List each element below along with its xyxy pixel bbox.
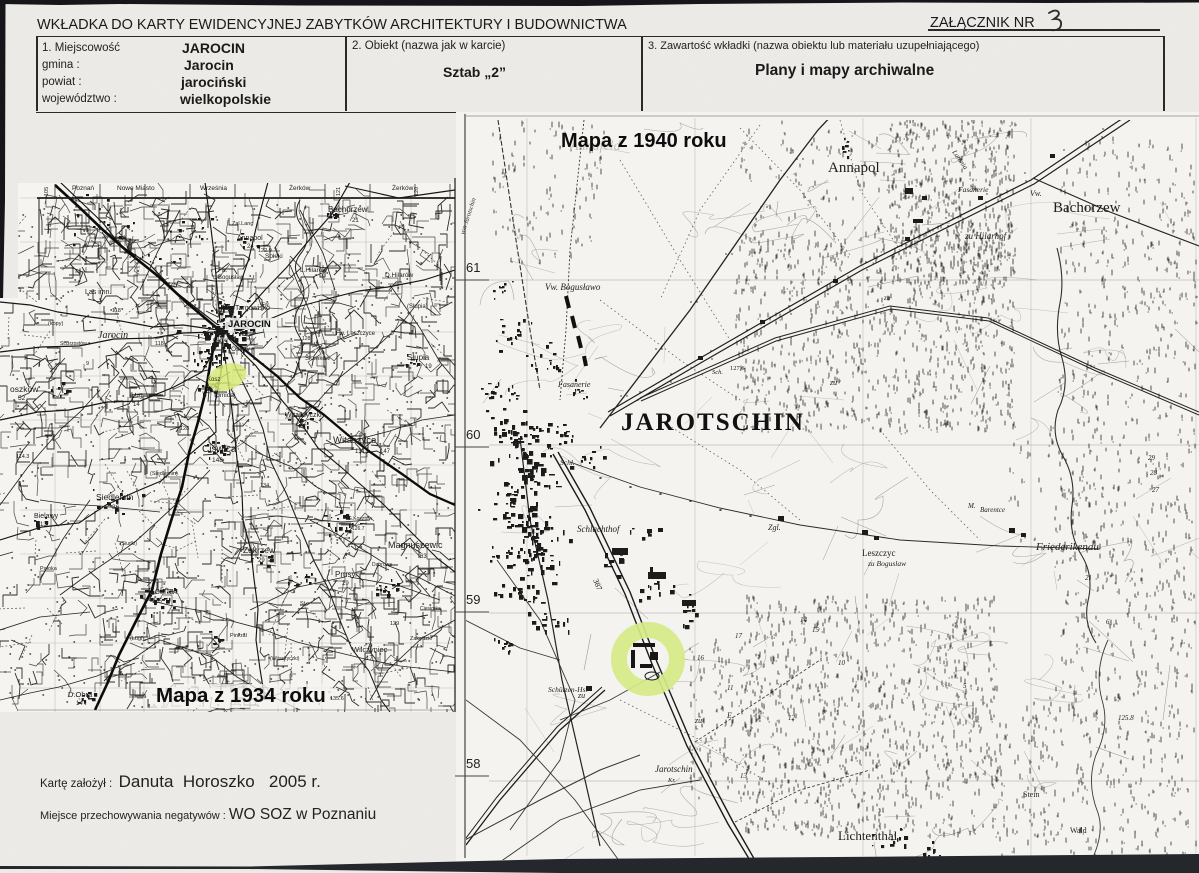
svg-text:52: 52	[18, 395, 26, 402]
svg-text:Żerków: Żerków	[392, 183, 414, 192]
svg-text:Zgl.: Zgl.	[768, 523, 781, 532]
svg-text:61: 61	[466, 260, 480, 275]
svg-text:148: 148	[212, 457, 223, 464]
svg-text:29: 29	[342, 581, 349, 587]
svg-text:128: 128	[302, 336, 311, 342]
svg-text:JAROTSCHIN: JAROTSCHIN	[621, 409, 805, 436]
svg-text:Mapa z 1940 roku: Mapa z 1940 roku	[561, 130, 727, 152]
svg-text:Bachorzew: Bachorzew	[1053, 200, 1121, 216]
svg-text:14: 14	[133, 402, 140, 408]
svg-text:Fw.: Fw.	[262, 302, 270, 308]
svg-text:zu: zu	[883, 294, 891, 302]
svg-text:Kosz: Kosz	[207, 377, 220, 383]
svg-text:19: 19	[425, 364, 432, 370]
svg-text:Głuki: Głuki	[213, 337, 228, 344]
svg-text:127,6: 127,6	[730, 365, 745, 372]
svg-text:Witaszyczki: Witaszyczki	[285, 412, 322, 419]
svg-text:Mapa z 1934 roku: Mapa z 1934 roku	[156, 684, 326, 707]
svg-text:Pinkral: Pinkral	[230, 633, 247, 639]
svg-text:21: 21	[1085, 574, 1092, 582]
svg-text:(kopy): (kopy)	[48, 321, 63, 327]
svg-text:Dąbrowa: Dąbrowa	[372, 562, 392, 568]
svg-text:Schlachthof: Schlachthof	[577, 524, 621, 534]
svg-text:L.Hilarów: L.Hilarów	[300, 267, 327, 274]
svg-text:126.7: 126.7	[352, 526, 365, 532]
svg-text:Pałoka: Pałoka	[40, 566, 58, 572]
svg-text:Vw. Bogusławo: Vw. Bogusławo	[545, 282, 601, 292]
svg-text:16: 16	[697, 654, 705, 662]
svg-text:Leszczyc: Leszczyc	[862, 548, 895, 558]
svg-text:Słowików: Słowików	[305, 356, 331, 362]
svg-text:135.6: 135.6	[330, 696, 344, 702]
svg-text:29: 29	[1148, 454, 1156, 462]
svg-text:120: 120	[414, 187, 420, 196]
svg-text:63: 63	[420, 554, 427, 560]
svg-text:Fw. Leszczyce: Fw. Leszczyce	[336, 331, 376, 337]
svg-text:Bogusław: Bogusław	[218, 275, 245, 281]
svg-text:Siedlemin: Siedlemin	[96, 492, 134, 502]
svg-text:zu: zu	[829, 378, 837, 387]
svg-text:11: 11	[727, 684, 733, 692]
svg-text:14: 14	[800, 616, 808, 624]
svg-text:Golina: Golina	[148, 586, 174, 596]
svg-text:Kr.: Kr.	[667, 777, 676, 784]
svg-text:29: 29	[258, 558, 265, 564]
svg-text:58: 58	[466, 756, 480, 771]
svg-text:(Słupia): (Słupia)	[407, 304, 428, 310]
svg-text:Lichtenthal: Lichtenthal	[838, 828, 898, 843]
svg-text:E.: E.	[726, 711, 734, 720]
svg-text:Annapol: Annapol	[828, 160, 880, 176]
svg-text:14: 14	[76, 701, 83, 707]
svg-text:131: 131	[355, 449, 366, 455]
svg-text:24: 24	[247, 244, 254, 250]
svg-text:129: 129	[390, 621, 399, 627]
svg-text:13: 13	[740, 772, 748, 780]
svg-text:Tomidaj: Tomidaj	[213, 392, 235, 399]
svg-text:Bielawy: Bielawy	[34, 513, 59, 520]
svg-text:Sołeki: Sołeki	[265, 253, 283, 260]
svg-text:60: 60	[466, 427, 480, 442]
svg-text:(Siudki): (Siudki)	[120, 541, 137, 547]
svg-text:Jarotschin: Jarotschin	[655, 764, 693, 774]
svg-text:Wilczyniec: Wilczyniec	[352, 645, 388, 654]
svg-text:Prusy: Prusy	[335, 570, 355, 579]
svg-text:105: 105	[44, 187, 50, 196]
svg-text:Września: Września	[200, 185, 227, 192]
svg-text:JAROCIN: JAROCIN	[228, 319, 271, 330]
svg-text:105: 105	[152, 599, 163, 605]
svg-text:59: 59	[466, 592, 480, 607]
svg-text:M.: M.	[967, 502, 976, 510]
svg-text:128: 128	[180, 426, 189, 432]
svg-text:Nowe Miasto: Nowe Miasto	[117, 185, 155, 192]
svg-text:6: 6	[1106, 618, 1110, 626]
svg-text:28: 28	[1150, 469, 1158, 477]
svg-text:17: 17	[366, 656, 373, 662]
svg-text:147: 147	[380, 449, 391, 455]
svg-text:118: 118	[112, 308, 121, 314]
svg-text:32: 32	[300, 421, 307, 427]
svg-text:Vw.: Vw.	[1030, 189, 1042, 198]
svg-text:Osady: Osady	[231, 346, 251, 353]
svg-text:5: 5	[963, 682, 967, 690]
svg-text:10: 10	[838, 659, 846, 667]
svg-text:Stein: Stein	[1023, 790, 1039, 799]
svg-text:St.: St.	[300, 601, 307, 607]
svg-text:27: 27	[1152, 486, 1160, 494]
svg-text:zu: zu	[694, 716, 702, 725]
svg-text:118: 118	[155, 341, 164, 347]
svg-text:Zakędzie: Zakędzie	[410, 636, 432, 642]
svg-text:Zal.Lang: Zal.Lang	[232, 221, 253, 227]
svg-text:114.3: 114.3	[16, 454, 29, 460]
svg-text:Fw.: Fw.	[218, 268, 228, 274]
svg-text:12: 12	[788, 714, 796, 722]
svg-text:Fasanerie: Fasanerie	[557, 380, 591, 389]
svg-text:86: 86	[112, 504, 120, 511]
svg-text:21: 21	[352, 218, 359, 224]
svg-text:Witaszyce: Witaszyce	[333, 435, 376, 446]
svg-text:Ług: Ług	[131, 392, 143, 399]
svg-text:zu Boguslaw: zu Boguslaw	[867, 559, 906, 568]
svg-text:oszków: oszków	[10, 384, 39, 394]
svg-text:125.8: 125.8	[1118, 714, 1134, 722]
svg-text:zu Hilarhof: zu Hilarhof	[964, 231, 1008, 241]
svg-text:Poznań: Poznań	[72, 185, 94, 192]
svg-text:Słupia: Słupia	[407, 353, 430, 362]
svg-text:(Ługi): (Ługi)	[130, 636, 144, 642]
svg-text:17: 17	[735, 632, 743, 640]
svg-text:Jarocin: Jarocin	[98, 330, 128, 341]
svg-text:Ciesiorka: Ciesiorka	[420, 606, 441, 612]
svg-text:(Siedlemin): (Siedlemin)	[150, 471, 178, 477]
svg-text:Magnuszewic: Magnuszewic	[388, 540, 443, 550]
svg-text:Zakrzew: Zakrzew	[243, 545, 276, 555]
svg-text:Annapol: Annapol	[237, 235, 263, 242]
svg-text:D.Obra: D.Obra	[68, 690, 93, 699]
svg-text:Bachorzew: Bachorzew	[328, 205, 368, 214]
svg-text:Sch.: Sch.	[712, 369, 723, 376]
svg-text:St.Brzostów: St.Brzostów	[60, 341, 87, 347]
svg-text:G.Kosztów: G.Kosztów	[348, 516, 373, 522]
svg-text:Barentce: Barentce	[980, 506, 1005, 514]
svg-text:134: 134	[260, 483, 269, 489]
svg-text:13: 13	[40, 522, 47, 528]
svg-text:(Witaszyczki): (Witaszyczki)	[270, 656, 300, 662]
svg-text:9: 9	[86, 361, 89, 367]
svg-text:Fasanerie: Fasanerie	[957, 185, 989, 194]
svg-text:Żerków: Żerków	[289, 183, 311, 192]
svg-text:Wald: Wald	[1070, 826, 1087, 835]
svg-text:Friederikenau: Friederikenau	[1035, 541, 1099, 553]
svg-text:D.Hilarów: D.Hilarów	[385, 272, 413, 279]
svg-text:zu: zu	[577, 691, 585, 700]
svg-text:15: 15	[812, 626, 820, 634]
svg-text:121: 121	[336, 187, 342, 196]
svg-text:Las imn.: Las imn.	[85, 289, 112, 296]
svg-text:Schl.: Schl.	[560, 458, 575, 467]
svg-text:Ciświca: Ciświca	[202, 444, 237, 455]
